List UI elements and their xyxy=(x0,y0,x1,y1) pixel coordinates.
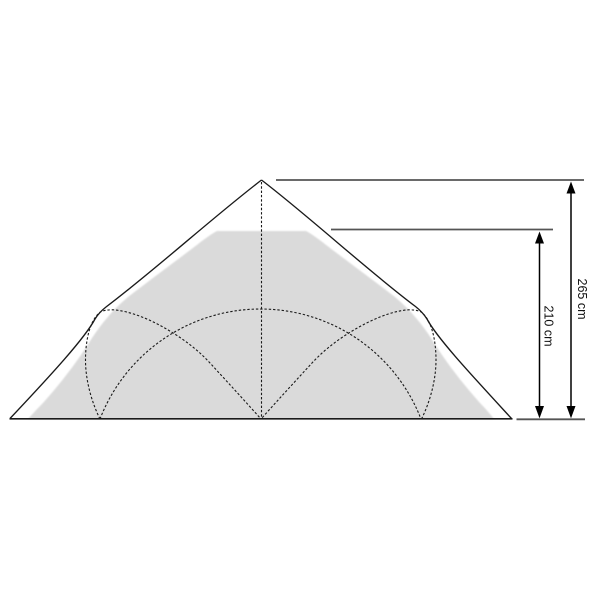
svg-text:210 cm: 210 cm xyxy=(542,306,556,347)
svg-text:265 cm: 265 cm xyxy=(575,279,589,320)
